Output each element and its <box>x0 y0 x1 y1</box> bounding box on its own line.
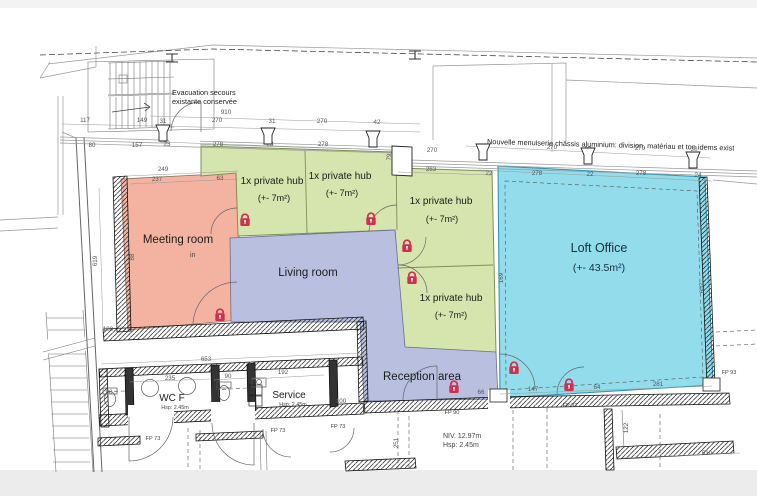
dimension-label: 278 <box>318 141 329 148</box>
dimension-label: 278 <box>532 170 543 177</box>
fp-label: FP 93 <box>563 403 578 409</box>
service-height-label: Hsp: 2.45m <box>279 402 307 408</box>
wc-label: WC F <box>159 393 185 404</box>
beam-symbol <box>409 51 421 59</box>
dimension-label: 619 <box>92 255 99 266</box>
dimension-label: 249 <box>158 166 169 173</box>
dimension-label: 31 <box>160 118 167 125</box>
dimension-label: 79 <box>386 153 393 160</box>
dimension-label: 283 <box>426 166 437 173</box>
loft-office-area: (+- 43.5m²) <box>573 262 625 274</box>
dimension-label: 270 <box>427 147 438 154</box>
dimension-label: 237 <box>152 176 163 183</box>
dimension-label: 80 <box>89 142 96 149</box>
dimension-label: 235 <box>165 375 176 382</box>
service-label: Service <box>272 390 306 401</box>
dimension-label: 90 <box>106 389 113 396</box>
dimension-label: 192 <box>278 369 289 376</box>
evacuation-note-line1: Evacuation secours <box>172 88 236 97</box>
dimension-label: 24 <box>695 172 702 179</box>
fp-label: FP 73 <box>146 436 161 442</box>
room-meeting-room <box>121 173 239 330</box>
fp-label: FP 73 <box>331 424 346 430</box>
dimension-label: 169 <box>498 272 505 283</box>
dimension-label: 510 <box>702 450 713 457</box>
dimension-label: 149 <box>137 117 148 124</box>
dimension-label: 100 <box>336 398 347 405</box>
dimension-label: 66 <box>478 389 485 396</box>
post-icon <box>156 125 170 141</box>
evacuation-note-line2: existante conservée <box>172 97 237 106</box>
dimension-label: 22 <box>587 171 594 178</box>
private-hub-area: (+- 7m²) <box>326 188 358 198</box>
dimension-label: 22 <box>486 170 493 177</box>
dimension-label: 100 <box>103 326 114 333</box>
private-hub-area: (+- 7m²) <box>426 214 458 224</box>
dimension-label: 251 <box>393 437 400 448</box>
dimension-label: 117 <box>80 117 90 124</box>
reception-area-label: Reception area <box>383 371 462 383</box>
dimension-label: 607 <box>699 282 706 293</box>
bottom-margin <box>0 470 757 496</box>
fp-label: FP 73 <box>271 428 286 434</box>
dimension-label: 270 <box>635 145 646 152</box>
dimension-label: 653 <box>201 356 212 363</box>
meeting-room-label: Meeting room <box>143 234 213 246</box>
living-room-label: Living room <box>278 267 337 279</box>
height-note: Hsp: 2.45m <box>443 442 479 449</box>
dimension-label: 64 <box>594 384 601 391</box>
dimension-label: 270 <box>547 144 558 151</box>
in-mark: in <box>190 252 196 259</box>
stair-direction-arrow <box>112 103 150 112</box>
dimension-label: 157 <box>132 142 143 149</box>
dimension-label: 42 <box>374 119 381 126</box>
private-hub-label: 1x private hub <box>309 171 372 182</box>
floor-plan-drawing: Evacuation secours existante conservée N… <box>0 0 757 496</box>
dimension-label: 63 <box>217 175 224 182</box>
dimension-label: 281 <box>653 381 664 388</box>
dimension-label: 270 <box>212 117 223 124</box>
fp-label: FP 93 <box>722 370 737 376</box>
wc-height-label: Hsp: 2.45m <box>161 405 189 411</box>
exterior-wall-left <box>76 137 102 472</box>
dimension-label: 90 <box>225 373 232 380</box>
private-hub-label: 1x private hub <box>241 176 304 187</box>
staircase-left <box>43 310 95 472</box>
top-margin <box>0 0 757 8</box>
fp-label: FP 90 <box>445 410 460 416</box>
dimension-label: 278 <box>636 170 647 177</box>
floor-plan-page: Evacuation secours existante conservée N… <box>0 0 757 496</box>
private-hub-label: 1x private hub <box>420 293 483 304</box>
dimension-label: 122 <box>623 422 630 433</box>
dimension-label: 147 <box>528 386 539 393</box>
post-icon <box>476 144 490 160</box>
dimension-label: 270 <box>317 118 328 125</box>
private-hub-label: 1x private hub <box>410 196 473 207</box>
dimension-label: 31 <box>269 118 276 125</box>
room-loft-office <box>498 166 713 398</box>
post-icon <box>581 148 595 164</box>
dimension-label: 23 <box>164 141 171 148</box>
dimension-label: 910 <box>221 109 232 116</box>
level-note: NIV. 12.97m <box>443 433 481 440</box>
post-icon <box>366 131 380 147</box>
dimension-label: 88 <box>129 253 136 260</box>
private-hub-area: (+- 7m²) <box>435 310 467 320</box>
dimension-label: 278 <box>213 141 224 148</box>
loft-office-label: Loft Office <box>571 241 628 255</box>
post-icon <box>686 152 700 168</box>
private-hub-area: (+- 7m²) <box>258 193 290 203</box>
